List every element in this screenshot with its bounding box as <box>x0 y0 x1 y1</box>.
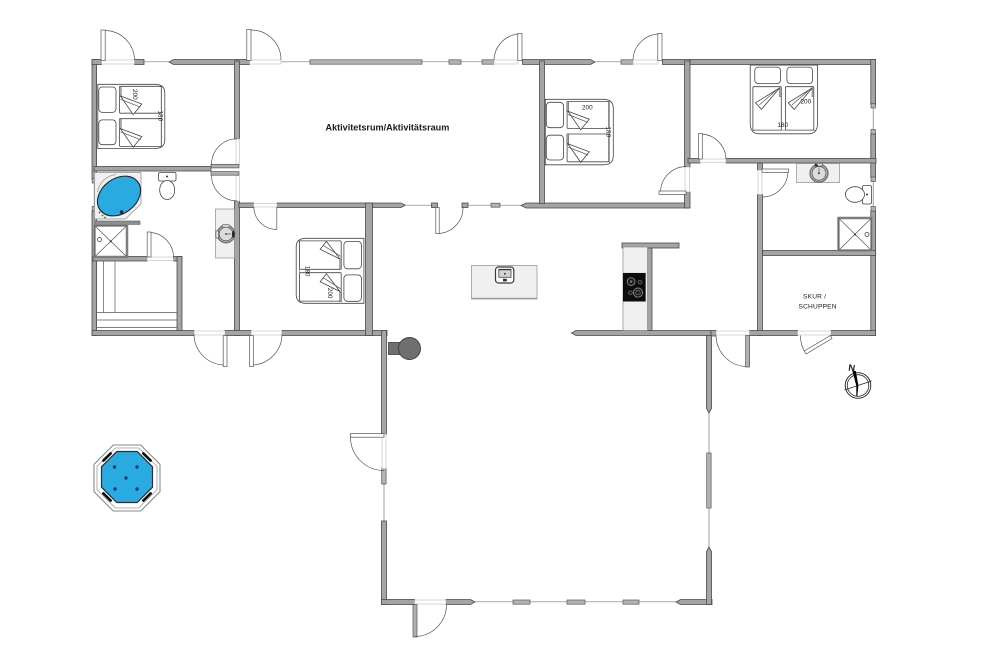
svg-text:200: 200 <box>131 89 138 100</box>
svg-text:200: 200 <box>801 99 812 106</box>
svg-text:200: 200 <box>582 105 593 112</box>
svg-text:180: 180 <box>157 111 164 122</box>
svg-text:200: 200 <box>326 288 333 299</box>
svg-text:Aktivitetsrum/Aktivitätsraum: Aktivitetsrum/Aktivitätsraum <box>326 122 450 132</box>
svg-text:SCHUPPEN: SCHUPPEN <box>799 304 837 311</box>
svg-text:SKUR /: SKUR / <box>803 294 826 301</box>
svg-text:180: 180 <box>778 122 789 129</box>
svg-text:180: 180 <box>605 127 612 138</box>
svg-text:180: 180 <box>304 266 311 277</box>
